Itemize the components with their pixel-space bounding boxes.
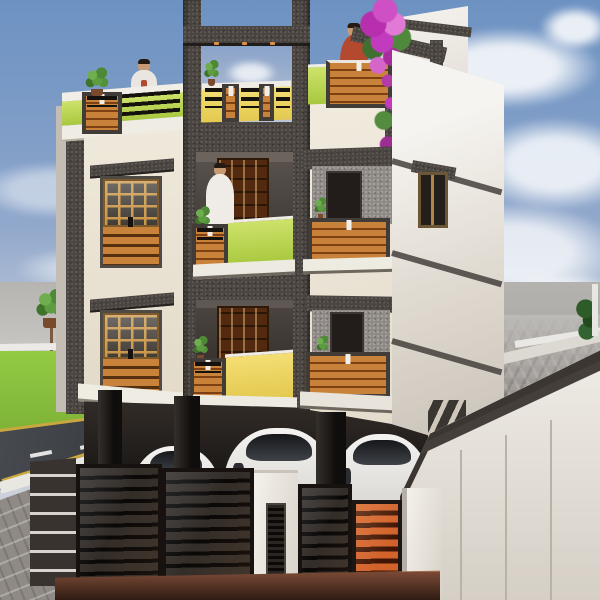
balcony-middle-parapet-lime (227, 216, 293, 267)
tower-pillar-right (292, 0, 310, 412)
window-upper (100, 176, 162, 268)
downlight (270, 42, 275, 45)
terrace-post-rails (87, 96, 117, 107)
balcony-lower-parapet-yellow (225, 350, 293, 403)
balcony-corner-wood-panel-lower (306, 352, 390, 398)
potted-plant (314, 194, 327, 220)
inner-terrace-rails (205, 88, 222, 108)
downlight (214, 42, 219, 45)
inner-terrace-rails (241, 88, 259, 108)
cloud (540, 6, 600, 50)
window-louver (103, 227, 159, 265)
terrace-railing (122, 90, 180, 117)
balcony-lower-rails (195, 362, 221, 373)
window-handle (128, 349, 133, 359)
balcony-corner-recess (312, 166, 392, 224)
inner-terrace-post (222, 84, 239, 122)
potted-plant (203, 56, 220, 86)
potted-plant (82, 64, 112, 96)
wall-joint (550, 420, 552, 600)
window-handle (128, 217, 133, 227)
side-window (418, 172, 448, 228)
inner-terrace-rails (276, 88, 290, 108)
balcony-corner-door (326, 171, 362, 221)
distant-post (592, 284, 598, 336)
balcony-middle-rails (197, 228, 223, 240)
side-window-mullion (431, 175, 434, 225)
downlight (242, 42, 247, 45)
corner-pilaster (66, 102, 84, 414)
floor-slab (303, 257, 395, 274)
architectural-render (0, 0, 600, 600)
wall-joint (505, 435, 507, 600)
inner-terrace-post (259, 84, 274, 121)
brick-pillar (30, 458, 76, 586)
wall-joint (460, 450, 462, 600)
